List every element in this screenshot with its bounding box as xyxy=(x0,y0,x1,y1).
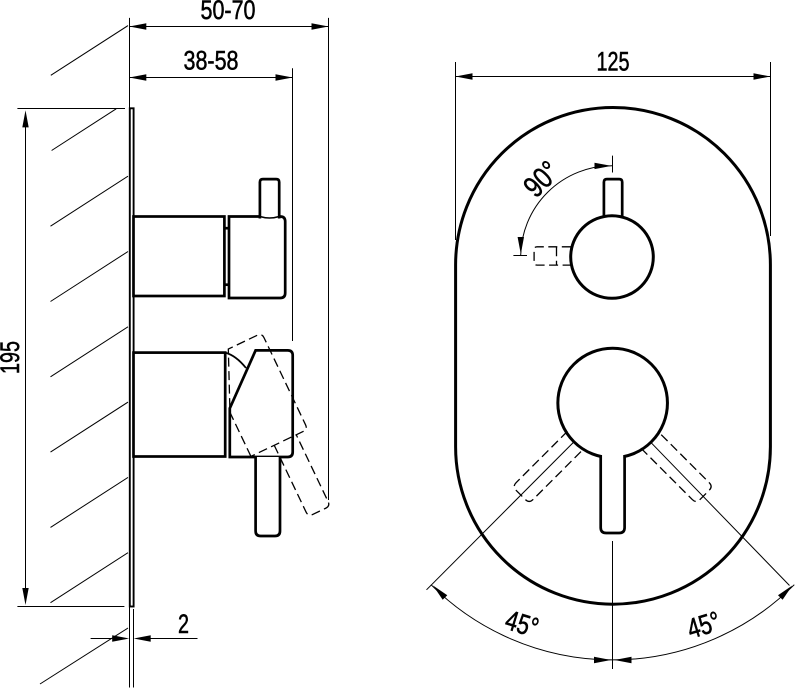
svg-text:195: 195 xyxy=(0,341,25,374)
svg-text:38-58: 38-58 xyxy=(184,46,239,76)
svg-text:50-70: 50-70 xyxy=(201,0,256,25)
svg-text:125: 125 xyxy=(597,46,630,76)
svg-text:2: 2 xyxy=(178,609,189,639)
